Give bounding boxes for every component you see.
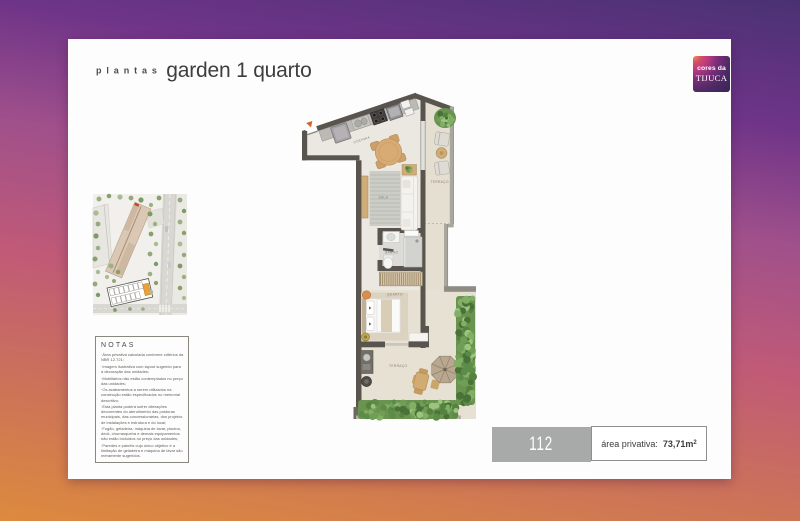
svg-text:TERRAÇO: TERRAÇO — [431, 180, 450, 184]
svg-text:SALA: SALA — [379, 196, 389, 200]
svg-text:QUARTO: QUARTO — [387, 293, 403, 297]
svg-text:BANHO: BANHO — [385, 251, 398, 255]
svg-text:TERRAÇO: TERRAÇO — [389, 364, 408, 368]
